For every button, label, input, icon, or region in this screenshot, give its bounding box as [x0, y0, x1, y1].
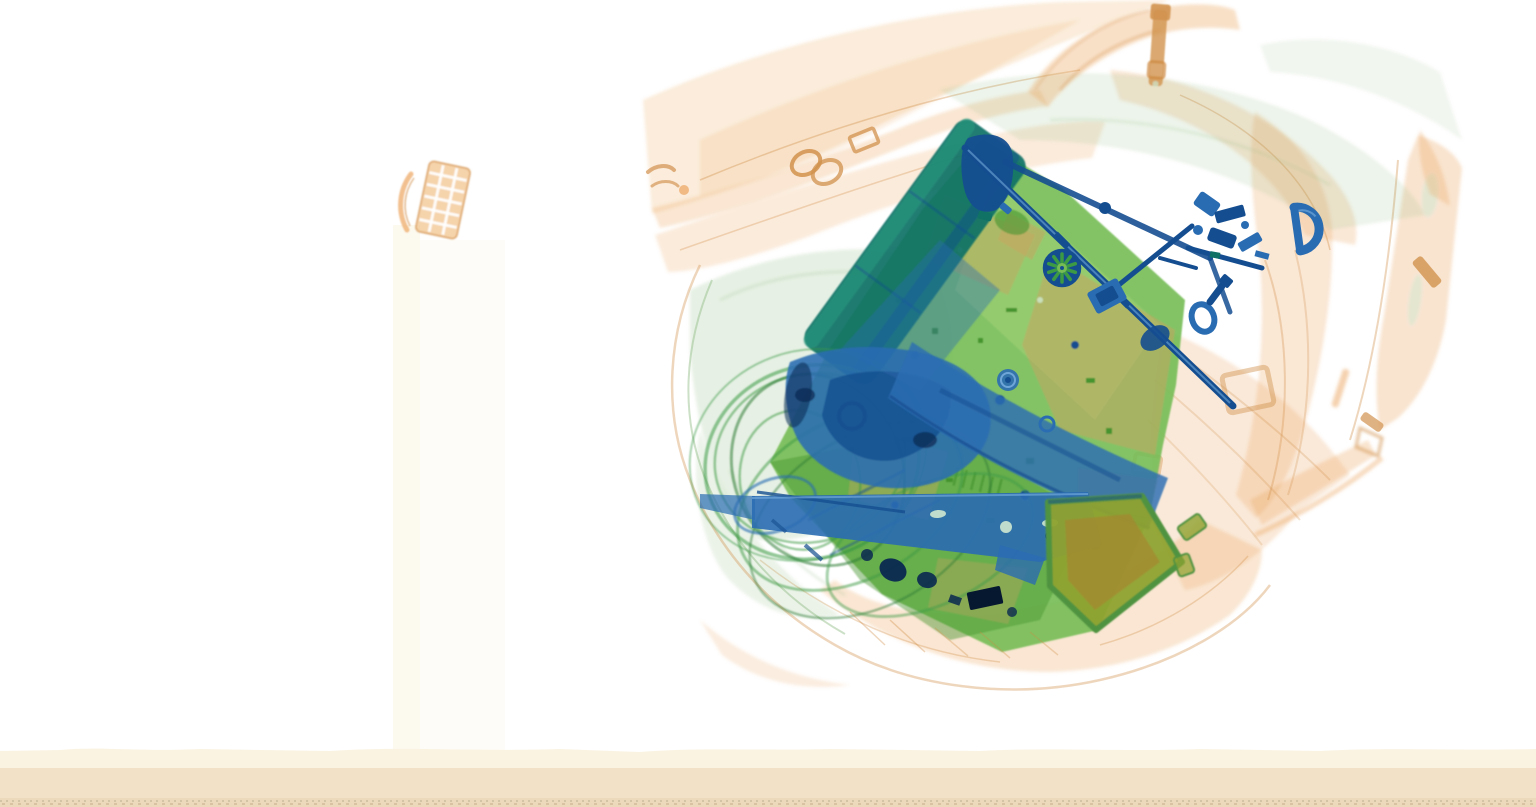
belt-beige-band — [0, 768, 1536, 800]
cooling-fan-large — [1044, 250, 1080, 286]
smd-component — [1106, 428, 1112, 434]
artifact-band — [393, 225, 420, 770]
rod-joint — [1099, 202, 1111, 214]
key-item — [1206, 227, 1237, 250]
key-shaft — [1188, 248, 1262, 268]
belt-speckled-edge — [0, 798, 1536, 807]
dark-component — [1007, 607, 1017, 617]
fan-hub-dot — [1005, 377, 1011, 383]
scan-artifact-bands — [393, 225, 505, 770]
clasp-neck — [1210, 286, 1222, 302]
smd-component — [1086, 378, 1095, 383]
belt-cream-strip — [0, 749, 1536, 770]
bracket-hole — [1000, 521, 1012, 533]
cooling-fan-small — [997, 369, 1019, 391]
pouch-mesh-panel — [415, 160, 471, 239]
smd-dot — [1037, 297, 1043, 303]
fan-blade — [1068, 270, 1076, 272]
pointer-rod — [1160, 258, 1196, 268]
fan-hub-dot — [1060, 266, 1064, 270]
drive-dark-blob — [913, 432, 937, 448]
zipper-head — [1150, 3, 1171, 20]
backpack — [643, 0, 1462, 689]
xray-scan-viewport: Airport security X-ray scan of a backpac… — [0, 0, 1536, 807]
conveyor-belt — [0, 749, 1536, 807]
artifact-band — [420, 240, 505, 770]
strap-stud — [679, 185, 689, 195]
xray-scan-image: Airport security X-ray scan of a backpac… — [0, 0, 1536, 807]
smd-component — [946, 478, 953, 482]
key-head — [1193, 225, 1203, 235]
fabric-sliver — [1331, 368, 1350, 408]
key-head — [1241, 221, 1249, 229]
fan-blade — [1049, 270, 1057, 272]
smd-component — [978, 338, 983, 343]
fabric-under-board — [700, 620, 850, 687]
dark-component — [861, 549, 873, 561]
smd-dot — [1071, 341, 1079, 349]
fan-blade — [1068, 264, 1076, 266]
smd-component — [1006, 308, 1017, 312]
clasp-ring — [1188, 301, 1218, 335]
fan-blade — [1049, 264, 1057, 266]
